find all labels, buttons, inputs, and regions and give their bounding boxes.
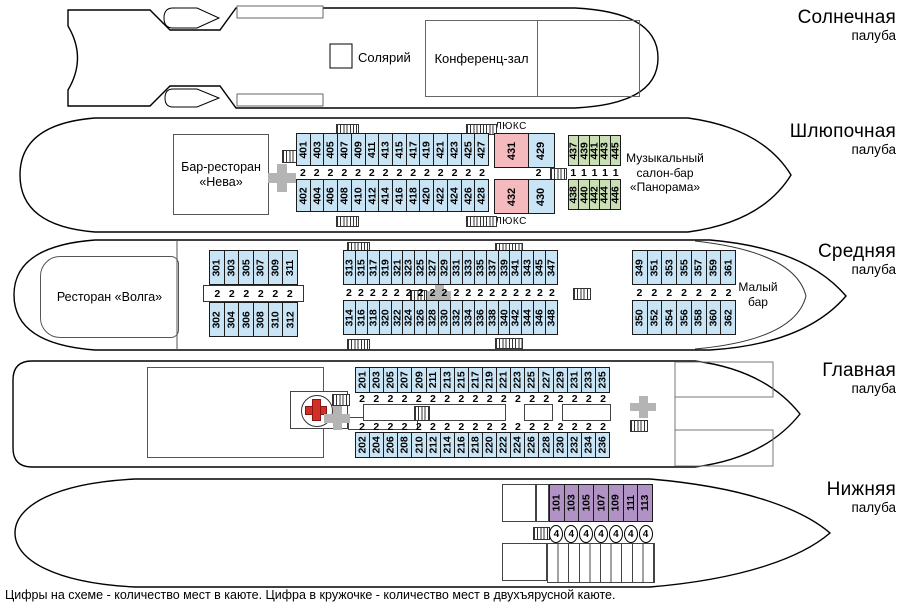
cell-value: 316 [355, 309, 367, 326]
cell-value: 328 [427, 309, 439, 326]
cell-value: 336 [474, 309, 486, 326]
cabin-cell: 423 [447, 133, 462, 166]
cell-value: 438 [568, 186, 579, 203]
cell-value: 338 [486, 309, 498, 326]
restaurant-volga-room: Ресторан «Волга» [40, 256, 179, 338]
middle-deck-mid-capacity-row: 222222222222222222 [343, 286, 558, 299]
cabin-cell: 302 [209, 302, 225, 337]
cell-value: 303 [226, 259, 238, 276]
cabin-cell: 418 [406, 179, 421, 212]
cabin-cell: 361 [720, 250, 736, 285]
cell-value: 4 [639, 525, 653, 543]
cell-value: 226 [526, 437, 538, 454]
cell-value: 2 [369, 167, 375, 179]
cell-value: 223 [512, 372, 524, 389]
capacity-label: 2 [582, 393, 596, 405]
capacity-label: 2 [483, 421, 497, 433]
stairs-steps [324, 406, 350, 430]
cell-value: 2 [458, 393, 464, 405]
maly-bar-line1: Малый [735, 280, 781, 295]
cabin-cell: 301 [209, 250, 225, 285]
stairs-hatch [495, 338, 523, 349]
cell-value: 202 [357, 437, 369, 454]
cabin-cell: 428 [474, 179, 489, 212]
cabin-cell: 208 [397, 432, 412, 458]
cell-value: 4 [609, 525, 623, 543]
cell-value: 2 [430, 287, 436, 299]
cabin-cell: 210 [411, 432, 426, 458]
cell-value: 311 [284, 259, 296, 275]
capacity-label: 2 [497, 421, 511, 433]
cabin-cell: 212 [426, 432, 441, 458]
cabin-number: 432 [506, 187, 518, 205]
cell-value: 217 [469, 372, 481, 389]
capacity-label: 2 [225, 288, 240, 300]
stairs-hatch [414, 406, 430, 421]
cell-value: 344 [522, 309, 534, 326]
cabin-cell: 426 [461, 179, 476, 212]
cell-value: 2 [396, 167, 402, 179]
cabin-number: 430 [535, 187, 547, 205]
cell-value: 307 [255, 259, 267, 276]
capacity-label: 2 [426, 421, 440, 433]
cell-value: 361 [722, 259, 734, 276]
bunk-capacity-circle: 4 [608, 525, 623, 543]
cabin-cell: 207 [397, 367, 412, 393]
lower-deck-service-cells [547, 543, 655, 583]
cabin-cell: 352 [647, 300, 663, 335]
deck-subname: палуба [736, 500, 896, 515]
cell-value: 203 [371, 372, 383, 389]
lower-deck-room [502, 484, 536, 522]
cell-value: 324 [403, 309, 415, 326]
cell-value: 359 [707, 259, 719, 276]
capacity-label: 2 [355, 287, 367, 299]
cell-value: 2 [489, 287, 495, 299]
cell-value: 354 [663, 309, 675, 326]
capacity-label: 2 [210, 288, 225, 300]
cell-value: 2 [452, 167, 458, 179]
cell-value: 341 [510, 259, 522, 276]
cabin-cell: 235 [595, 367, 610, 393]
cell-value: 443 [599, 142, 610, 159]
capacity-label: 2 [647, 287, 662, 299]
capacity-label: 2 [365, 167, 379, 179]
stairs-icon [324, 394, 354, 434]
cell-value: 333 [462, 259, 474, 276]
cell-value: 2 [359, 421, 365, 433]
cell-value: 2 [681, 287, 687, 299]
cell-value: 2 [444, 393, 450, 405]
capacity-label: 2 [454, 421, 468, 433]
middle-deck-fwd-row-top: 349351353355357359361 [632, 250, 736, 285]
cell-value: 2 [487, 393, 493, 405]
cell-value: 2 [549, 287, 555, 299]
cell-value: 2 [358, 287, 364, 299]
cell-value: 323 [403, 259, 415, 276]
bunk-capacity-circle: 4 [579, 525, 594, 543]
cell-value: 301 [211, 259, 223, 276]
cabin-cell: 226 [524, 432, 539, 458]
cell-value: 445 [610, 142, 621, 159]
capacity-label: 2 [412, 421, 426, 433]
capacity-label: 2 [568, 393, 582, 405]
cell-value: 2 [479, 167, 485, 179]
music-bar-label: Музыкальный салон-бар «Панорама» [622, 151, 708, 195]
legend-caption: Цифры на схеме - количество мест в каюте… [5, 588, 616, 602]
cell-value: 349 [634, 259, 646, 276]
cabin-cell: 409 [351, 133, 366, 166]
cell-value: 425 [462, 141, 474, 158]
capacity-label: 2 [398, 393, 412, 405]
cell-value: 2 [600, 421, 606, 433]
conference-room: Конференц-зал [425, 20, 640, 97]
cell-value: 308 [255, 311, 267, 328]
deck-subname: палуба [736, 142, 896, 157]
cabin-number: 429 [535, 141, 547, 159]
cell-value: 2 [696, 287, 702, 299]
cell-value: 317 [367, 259, 379, 276]
cell-value: 2 [666, 287, 672, 299]
cell-value: 2 [314, 167, 320, 179]
cabin-cell: 358 [691, 300, 707, 335]
conference-room-label: Конференц-зал [426, 21, 537, 96]
main-deck-cabin-row-bottom: 2022042062082102122142162182202222242262… [355, 432, 610, 458]
cell-value: 107 [595, 495, 607, 512]
cell-value: 210 [413, 437, 425, 454]
stairs-icon [628, 396, 658, 432]
boat-deck-green-capacity-row: 11111 [568, 166, 621, 179]
cell-value: 2 [243, 288, 249, 300]
cabin-cell: 425 [461, 133, 476, 166]
cell-value: 321 [391, 259, 403, 276]
middle-deck-mid-row-bottom: 3143163183203223243263283303323343363383… [343, 300, 558, 335]
cell-value: 419 [421, 141, 433, 158]
cell-value: 326 [415, 309, 427, 326]
capacity-label: 2 [721, 287, 736, 299]
capacity-label: 2 [553, 393, 567, 405]
cabin-cell: 445 [610, 135, 621, 166]
cell-value: 322 [391, 309, 403, 326]
stairs-hatch [573, 288, 591, 300]
cell-value: 2 [525, 287, 531, 299]
cell-value: 225 [526, 372, 538, 389]
cell-value: 4 [549, 525, 563, 543]
cell-value: 334 [462, 309, 474, 326]
cell-value: 213 [441, 372, 453, 389]
cabin-number: 431 [506, 141, 518, 159]
cabin-cell: 205 [383, 367, 398, 393]
deck-name: Шлюпочная [736, 121, 896, 142]
corridor-segment [562, 404, 611, 421]
cell-value: 1 [570, 167, 576, 179]
solarium-label: Солярий [358, 50, 418, 65]
deck-name: Главная [736, 360, 896, 381]
cell-value: 211 [427, 372, 439, 388]
deck-subname: палуба [736, 381, 896, 396]
cell-value: 209 [413, 372, 425, 389]
cell-value: 442 [589, 186, 600, 203]
stairs-hatch [466, 216, 497, 227]
capacity-label: 2 [474, 287, 486, 299]
ship-deck-plan: Солнечная палуба Шлюпочная палуба Средня… [0, 0, 900, 604]
cell-value: 304 [226, 311, 238, 328]
cell-value: 2 [287, 288, 293, 300]
cell-value: 2 [711, 287, 717, 299]
cell-value: 313 [343, 259, 355, 276]
cabin-cell: 223 [510, 367, 525, 393]
cell-value: 235 [596, 372, 608, 389]
cell-value: 234 [582, 437, 594, 454]
cell-value: 214 [441, 437, 453, 454]
cabin-cell: 105 [578, 484, 594, 522]
cabin-cell: 201 [355, 367, 370, 393]
cabin-cell: 413 [378, 133, 393, 166]
cabin-cell: 306 [238, 302, 254, 337]
cabin-cell: 310 [268, 302, 284, 337]
cell-value: 2 [359, 393, 365, 405]
solarium-square [330, 44, 352, 68]
cabin-cell: 111 [623, 484, 639, 522]
cell-value: 320 [379, 309, 391, 326]
cell-value: 424 [448, 187, 460, 204]
lower-deck-cabin-row: 101103105107109111113 [549, 484, 653, 522]
cabin-cell: 217 [468, 367, 483, 393]
cell-value: 2 [328, 167, 334, 179]
cabin-cell: 357 [691, 250, 707, 285]
corridor-segment [363, 404, 506, 421]
cell-value: 405 [325, 141, 337, 158]
cabin-cell: 351 [647, 250, 663, 285]
cell-value: 360 [707, 309, 719, 326]
cell-value: 2 [402, 421, 408, 433]
cabin-cell: 354 [661, 300, 677, 335]
cabin-cell: 234 [581, 432, 596, 458]
capacity-label: 2 [439, 287, 451, 299]
cell-value: 2 [272, 288, 278, 300]
cabin-cell: 305 [238, 250, 254, 285]
capacity-label: 2 [498, 287, 510, 299]
cell-value: 4 [564, 525, 578, 543]
capacity-label: 2 [596, 421, 610, 433]
cell-value: 413 [380, 141, 392, 158]
cell-value: 103 [566, 495, 578, 512]
deck-label-lower: Нижняя палуба [736, 479, 896, 515]
cabin-cell: 359 [706, 250, 722, 285]
cabin-cell: 422 [433, 179, 448, 212]
capacity-label: 2 [528, 166, 549, 179]
main-deck-capacity-row-bottom: 222222222222222222 [355, 421, 610, 432]
cabin-cell: 304 [224, 302, 240, 337]
capacity-label: 2 [454, 393, 468, 405]
cell-value: 318 [367, 309, 379, 326]
stairs-steps [268, 164, 296, 192]
cabin-cell: 356 [676, 300, 692, 335]
cell-value: 229 [554, 372, 566, 389]
cabin-cell: 403 [310, 133, 325, 166]
cell-value: 315 [355, 259, 367, 276]
capacity-label: 2 [343, 287, 355, 299]
cabin-cell-429: 429 [528, 133, 555, 168]
cell-value: 426 [462, 187, 474, 204]
cell-value: 2 [214, 288, 220, 300]
cell-value: 219 [484, 372, 496, 389]
conference-room-divider [537, 21, 538, 96]
lower-deck-room [502, 543, 547, 581]
cell-value: 2 [465, 167, 471, 179]
capacity-label: 2 [475, 167, 489, 179]
cabin-cell: 411 [365, 133, 380, 166]
capacity-label: 2 [511, 421, 525, 433]
stairs-steps [630, 396, 656, 418]
capacity-label: 2 [497, 393, 511, 405]
cell-value: 2 [637, 287, 643, 299]
cell-value: 2 [473, 393, 479, 405]
cell-value: 2 [487, 421, 493, 433]
cell-value: 2 [430, 421, 436, 433]
cabin-cell: 355 [676, 250, 692, 285]
cell-value: 2 [355, 167, 361, 179]
cell-value: 2 [258, 288, 264, 300]
cell-value: 101 [551, 495, 563, 512]
cell-value: 347 [546, 259, 558, 276]
capacity-label: 2 [398, 421, 412, 433]
cell-value: 2 [229, 288, 235, 300]
cabin-cell: 215 [454, 367, 469, 393]
cabin-cell: 209 [411, 367, 426, 393]
cabin-cell: 204 [369, 432, 384, 458]
cabin-cell: 206 [383, 432, 398, 458]
cell-value: 2 [300, 167, 306, 179]
cell-value: 407 [339, 141, 351, 158]
cell-value: 345 [534, 259, 546, 276]
capacity-label: 2 [511, 393, 525, 405]
cell-value: 2 [501, 287, 507, 299]
bar-neva-label-line2: «Нева» [199, 175, 242, 190]
cabin-cell: 224 [510, 432, 525, 458]
cell-value: 358 [693, 309, 705, 326]
cabin-cell: 232 [567, 432, 582, 458]
cell-value: 427 [476, 141, 488, 158]
boat-deck-capacity-row: 22222222222222 [296, 166, 489, 179]
capacity-label: 2 [677, 287, 692, 299]
cell-value: 439 [578, 142, 589, 159]
cabin-cell: 211 [426, 367, 441, 393]
boat-deck-cabin-row-top: 4014034054074094114134154174194214234254… [296, 133, 489, 166]
cell-value: 408 [339, 187, 351, 204]
cell-value: 353 [663, 259, 675, 276]
cell-value: 339 [498, 259, 510, 276]
capacity-label: 2 [355, 421, 369, 433]
cell-value: 204 [371, 437, 383, 454]
middle-deck-mid-row-top: 3133153173193213233253273293313333353373… [343, 250, 558, 285]
stairs-hatch [336, 216, 359, 227]
capacity-label: 2 [337, 167, 351, 179]
cell-value: 4 [624, 525, 638, 543]
cell-value: 2 [515, 421, 521, 433]
capacity-label: 2 [351, 167, 365, 179]
bunk-capacity-circle: 4 [638, 525, 653, 543]
cell-value: 1 [581, 167, 587, 179]
capacity-label: 1 [579, 167, 590, 179]
cell-value: 312 [284, 311, 296, 328]
cell-value: 2 [383, 167, 389, 179]
cabin-cell: 350 [632, 300, 648, 335]
cell-value: 441 [589, 142, 600, 159]
deck-name: Солнечная [736, 7, 896, 28]
capacity-label: 1 [568, 167, 579, 179]
cell-value: 215 [455, 372, 467, 389]
cabin-cell: 233 [581, 367, 596, 393]
cell-value: 351 [649, 259, 661, 276]
capacity-label: 2 [539, 393, 553, 405]
cell-value: 2 [501, 393, 507, 405]
capacity-label: 2 [379, 167, 393, 179]
cabin-cell: 231 [567, 367, 582, 393]
cell-value: 340 [498, 309, 510, 326]
cell-value: 2 [572, 421, 578, 433]
cell-value: 412 [366, 187, 378, 204]
capacity-label: 2 [691, 287, 706, 299]
stairs-hatch [347, 339, 370, 350]
cell-value: 2 [388, 421, 394, 433]
capacity-label: 2 [461, 167, 475, 179]
cabin-cell: 229 [553, 367, 568, 393]
cell-value: 2 [543, 393, 549, 405]
cell-value: 105 [580, 495, 592, 512]
restaurant-volga-label: Ресторан «Волга» [57, 290, 162, 305]
cabin-cell: 219 [482, 367, 497, 393]
capacity-label: 2 [525, 421, 539, 433]
maly-bar-line2: бар [735, 295, 781, 310]
cabin-cell: 225 [524, 367, 539, 393]
cabin-cell: 420 [419, 179, 434, 212]
capacity-label: 2 [268, 288, 283, 300]
bunk-capacity-circle: 4 [594, 525, 609, 543]
cell-value: 228 [540, 437, 552, 454]
cell-value: 2 [529, 393, 535, 405]
cabin-cell-lux-432: 432 [494, 179, 530, 214]
cabin-cell: 236 [595, 432, 610, 458]
cell-value: 231 [568, 372, 580, 389]
cell-value: 350 [634, 309, 646, 326]
bar-neva-label-line1: Бар-ресторан [181, 160, 261, 175]
main-deck-capacity-row-top: 222222222222222222 [355, 393, 610, 404]
cell-value: 446 [610, 186, 621, 203]
cell-value: 206 [385, 437, 397, 454]
cell-value: 2 [402, 393, 408, 405]
hull-lower-deck [15, 479, 830, 587]
cabin-cell: 401 [296, 133, 311, 166]
cell-value: 2 [529, 421, 535, 433]
music-bar-line3: «Панорама» [622, 180, 708, 195]
cell-value: 306 [240, 311, 252, 328]
capacity-label: 2 [412, 393, 426, 405]
cell-value: 2 [373, 421, 379, 433]
cabin-cell: 113 [637, 484, 653, 522]
cell-value: 2 [444, 421, 450, 433]
cabin-cell: 109 [608, 484, 624, 522]
cell-value: 2 [406, 287, 412, 299]
cell-value: 406 [325, 187, 337, 204]
cell-value: 343 [522, 259, 534, 276]
capacity-label: 2 [434, 167, 448, 179]
cabin-cell: 407 [337, 133, 352, 166]
cell-value: 444 [599, 186, 610, 203]
cell-value: 2 [543, 421, 549, 433]
cell-value: 2 [465, 287, 471, 299]
cell-value: 355 [678, 259, 690, 276]
